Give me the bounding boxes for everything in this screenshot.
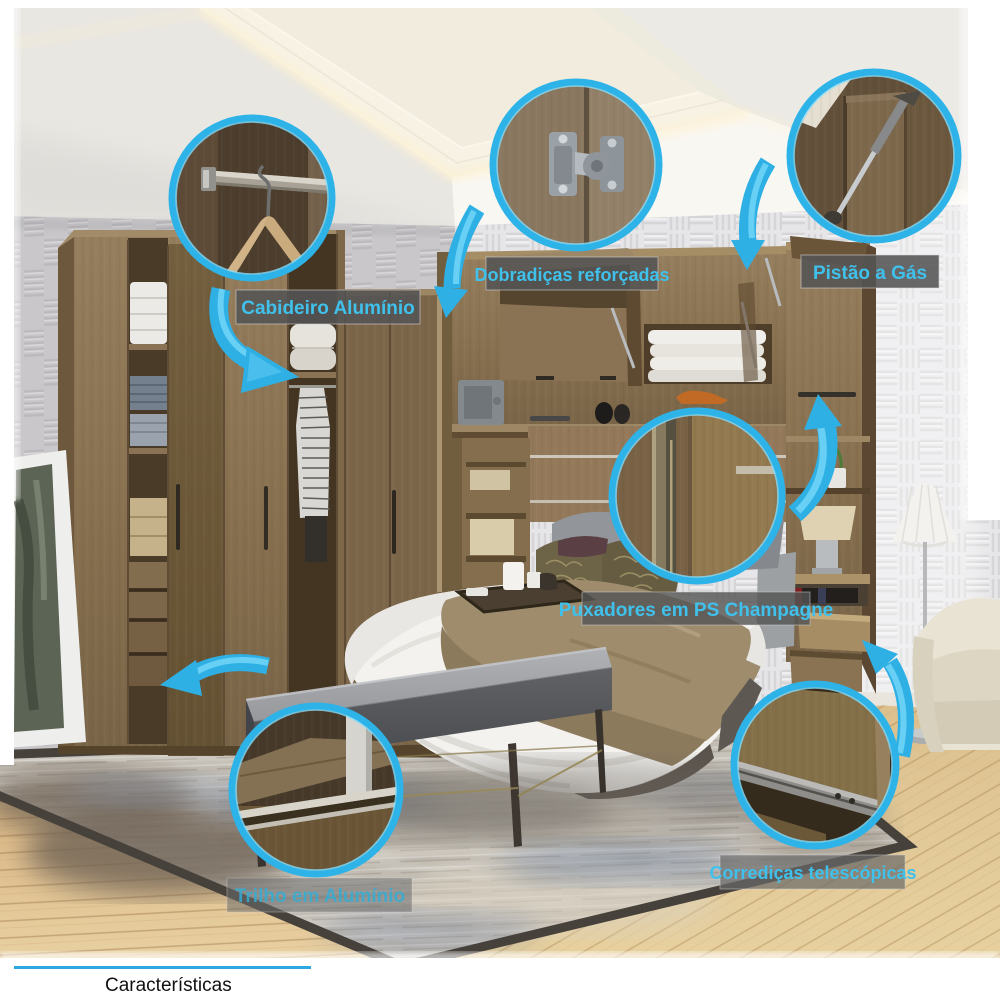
svg-text:Trilho em Alumínio: Trilho em Alumínio [235, 886, 405, 907]
svg-text:Pistão a Gás: Pistão a Gás [813, 263, 927, 284]
svg-text:Corrediças telescópicas: Corrediças telescópicas [709, 863, 916, 883]
svg-text:Dobradiças reforçadas: Dobradiças reforçadas [474, 265, 669, 285]
svg-text:Características: Características [105, 975, 232, 996]
svg-text:Cabideiro Alumínio: Cabideiro Alumínio [241, 298, 414, 319]
svg-text:Puxadores em PS Champagne: Puxadores em PS Champagne [559, 600, 834, 621]
